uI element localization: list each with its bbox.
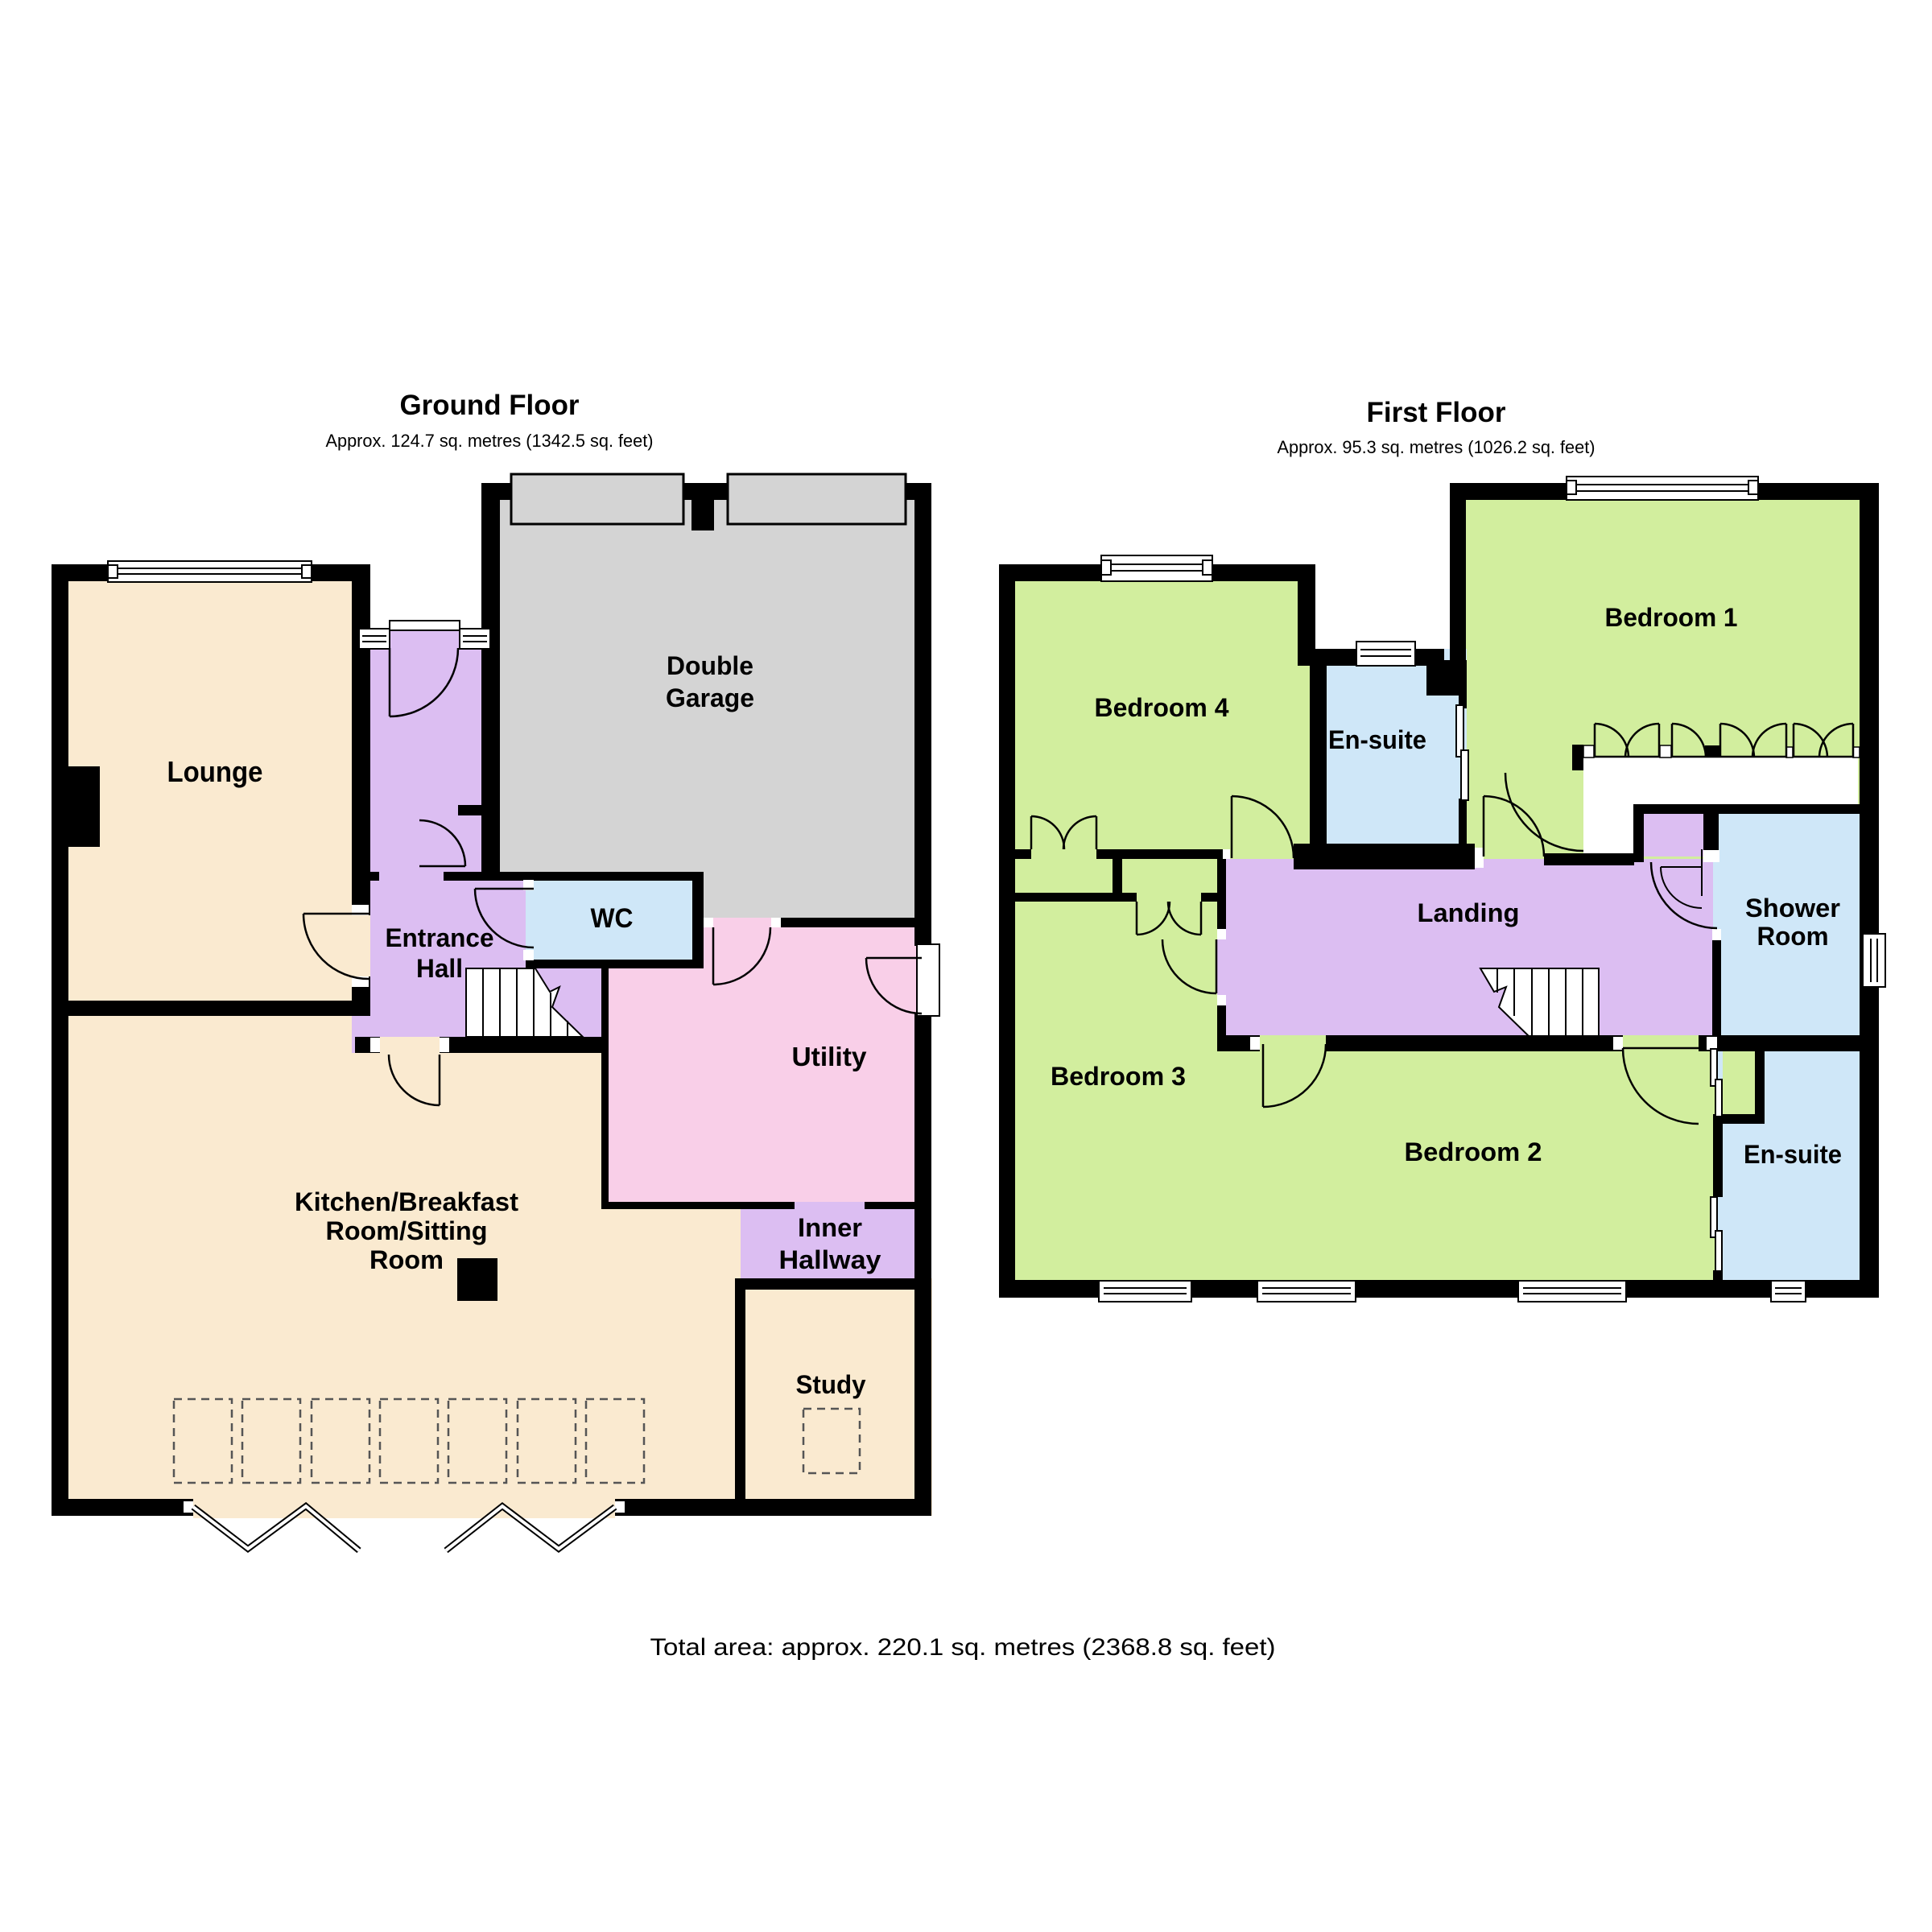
svg-text:Landing: Landing xyxy=(1418,898,1520,927)
svg-text:Bedroom 1: Bedroom 1 xyxy=(1605,603,1738,632)
svg-text:Hall: Hall xyxy=(416,954,463,983)
svg-text:Approx. 124.7 sq. metres (1342: Approx. 124.7 sq. metres (1342.5 sq. fee… xyxy=(326,431,654,451)
svg-text:Inner: Inner xyxy=(798,1213,862,1242)
svg-text:Bedroom 2: Bedroom 2 xyxy=(1405,1137,1542,1166)
svg-text:Lounge: Lounge xyxy=(167,755,263,788)
svg-text:Total area: approx. 220.1 sq.: Total area: approx. 220.1 sq. metres (23… xyxy=(650,1634,1276,1661)
svg-text:Bedroom 3: Bedroom 3 xyxy=(1051,1062,1186,1091)
svg-text:Bedroom 4: Bedroom 4 xyxy=(1095,693,1229,722)
svg-text:Garage: Garage xyxy=(666,683,754,712)
svg-text:Shower: Shower xyxy=(1745,894,1840,923)
svg-text:First Floor: First Floor xyxy=(1367,397,1506,428)
svg-text:Kitchen/Breakfast: Kitchen/Breakfast xyxy=(295,1187,518,1216)
svg-text:Room: Room xyxy=(1757,922,1829,951)
svg-text:Room/Sitting: Room/Sitting xyxy=(326,1216,488,1245)
svg-text:En-suite: En-suite xyxy=(1744,1140,1842,1169)
svg-text:Hallway: Hallway xyxy=(779,1245,881,1274)
svg-text:Utility: Utility xyxy=(792,1042,868,1071)
svg-text:Approx. 95.3 sq. metres (1026.: Approx. 95.3 sq. metres (1026.2 sq. feet… xyxy=(1278,437,1596,457)
svg-text:Room: Room xyxy=(369,1245,444,1274)
svg-text:Ground Floor: Ground Floor xyxy=(400,390,580,421)
svg-text:Entrance: Entrance xyxy=(386,923,494,952)
svg-text:En-suite: En-suite xyxy=(1328,725,1426,754)
svg-text:WC: WC xyxy=(591,903,634,934)
svg-text:Study: Study xyxy=(796,1370,866,1399)
svg-text:Double: Double xyxy=(667,651,753,680)
